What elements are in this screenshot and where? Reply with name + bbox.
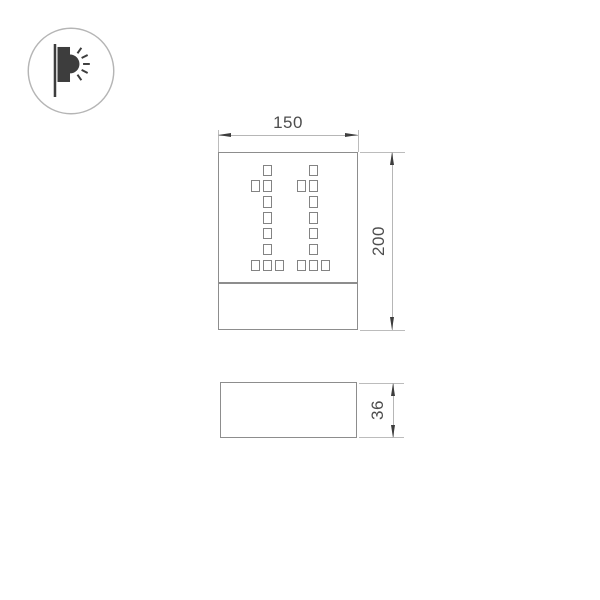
height-dimension-line	[392, 152, 393, 330]
perforation-square	[309, 260, 318, 272]
arrow-right-icon	[345, 133, 358, 137]
width-dimension-label: 150	[258, 113, 318, 133]
perforation-square	[309, 228, 318, 240]
arrow-down-icon	[391, 425, 395, 438]
perforation-square	[263, 165, 272, 177]
perforation-square	[321, 260, 330, 272]
brand-logo	[26, 26, 116, 116]
perforation-square	[263, 196, 272, 208]
perforation-square	[309, 180, 318, 192]
perforation-square	[309, 212, 318, 224]
perforation-square	[263, 260, 272, 272]
perforation-square	[263, 244, 272, 256]
perforation-square	[263, 228, 272, 240]
arrow-down-icon	[390, 317, 394, 330]
width-dimension-line	[218, 135, 358, 136]
perforation-square	[251, 180, 260, 192]
side-view-outline	[220, 382, 357, 438]
perforation-digit-1	[251, 165, 284, 275]
arrow-up-icon	[390, 152, 394, 165]
height-extension-line-bottom	[360, 330, 405, 331]
perforation-digit-2	[297, 165, 330, 275]
perforation-square	[275, 260, 284, 272]
front-view-divider-line	[218, 282, 358, 284]
perforation-square	[263, 180, 272, 192]
perforation-square	[297, 260, 306, 272]
front-view-outline	[218, 152, 358, 330]
perforation-square	[309, 196, 318, 208]
wall-light-icon	[26, 26, 116, 116]
perforation-square	[263, 212, 272, 224]
perforation-square	[309, 244, 318, 256]
perforation-square	[251, 260, 260, 272]
arrow-up-icon	[391, 383, 395, 396]
depth-dimension-label: 36	[368, 380, 388, 440]
arrow-left-icon	[218, 133, 231, 137]
height-extension-line-top	[360, 152, 405, 153]
perforation-square	[309, 165, 318, 177]
height-dimension-label: 200	[369, 211, 389, 271]
perforation-square	[297, 180, 306, 192]
